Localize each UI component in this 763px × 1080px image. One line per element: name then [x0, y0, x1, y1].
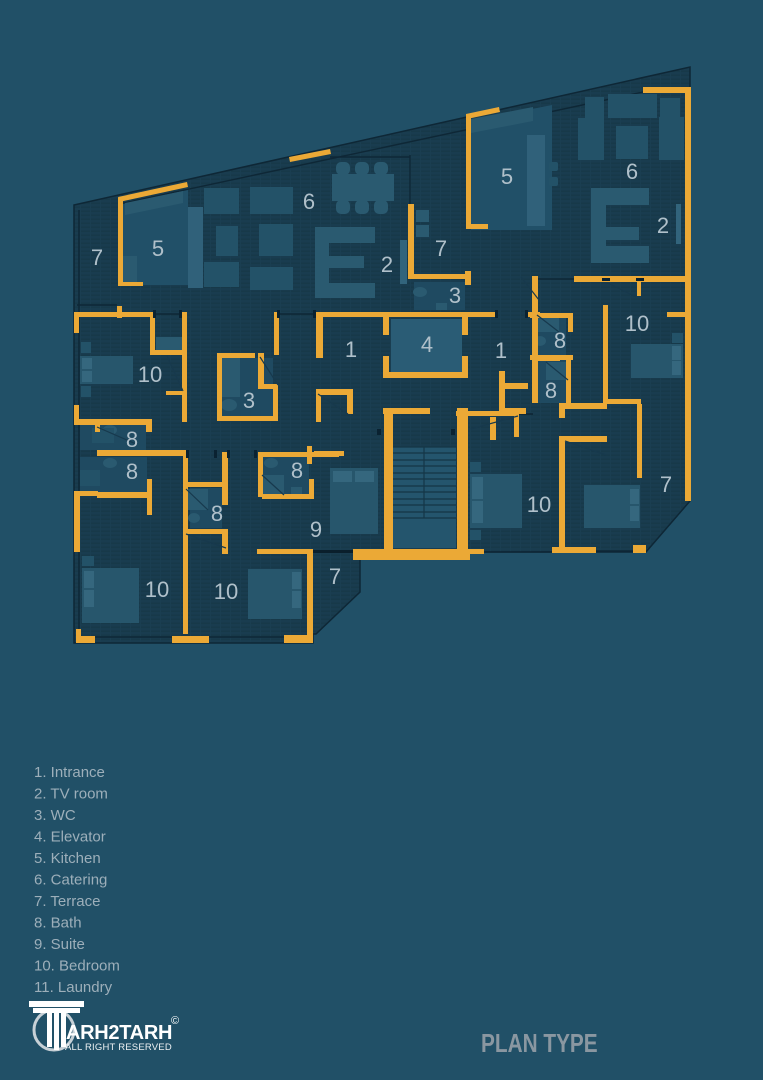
svg-text:10: 10	[214, 579, 238, 604]
svg-text:5: 5	[152, 236, 164, 261]
svg-text:ALL RIGHT RESERVED: ALL RIGHT RESERVED	[65, 1042, 172, 1053]
svg-text:4. Elevator: 4. Elevator	[34, 829, 106, 846]
svg-text:6. Catering: 6. Catering	[34, 872, 107, 889]
svg-text:6: 6	[626, 159, 638, 184]
svg-text:7: 7	[329, 564, 341, 589]
svg-text:7: 7	[435, 236, 447, 261]
svg-text:8. Bath: 8. Bath	[34, 915, 82, 932]
svg-text:9. Suite: 9. Suite	[34, 936, 85, 953]
svg-text:8: 8	[554, 328, 566, 353]
svg-text:ARH2TARH: ARH2TARH	[66, 1022, 172, 1044]
svg-text:10. Bedroom: 10. Bedroom	[34, 958, 120, 975]
svg-text:6: 6	[303, 189, 315, 214]
svg-text:10: 10	[145, 577, 169, 602]
svg-text:4: 4	[421, 332, 433, 357]
svg-text:3. WC: 3. WC	[34, 807, 76, 824]
svg-text:1: 1	[345, 337, 357, 362]
svg-text:1. Intrance: 1. Intrance	[34, 764, 105, 781]
svg-text:10: 10	[138, 362, 162, 387]
svg-text:2. TV room: 2. TV room	[34, 786, 108, 803]
svg-text:8: 8	[545, 378, 557, 403]
svg-text:5: 5	[501, 164, 513, 189]
svg-text:7: 7	[660, 472, 672, 497]
svg-text:3: 3	[243, 388, 255, 413]
svg-text:9: 9	[310, 517, 322, 542]
svg-text:8: 8	[126, 427, 138, 452]
svg-text:5. Kitchen: 5. Kitchen	[34, 850, 101, 867]
svg-text:7: 7	[91, 245, 103, 270]
svg-text:8: 8	[211, 501, 223, 526]
svg-text:3: 3	[449, 283, 461, 308]
svg-text:8: 8	[291, 458, 303, 483]
svg-text:2: 2	[381, 252, 393, 277]
svg-text:10: 10	[527, 492, 551, 517]
svg-text:7. Terrace: 7. Terrace	[34, 893, 100, 910]
svg-text:PLAN TYPE: PLAN TYPE	[481, 1029, 598, 1058]
svg-text:©: ©	[171, 1015, 179, 1027]
svg-text:1: 1	[495, 338, 507, 363]
svg-text:8: 8	[126, 459, 138, 484]
svg-text:10: 10	[625, 311, 649, 336]
svg-text:11. Laundry: 11. Laundry	[34, 979, 113, 996]
svg-text:2: 2	[657, 213, 669, 238]
